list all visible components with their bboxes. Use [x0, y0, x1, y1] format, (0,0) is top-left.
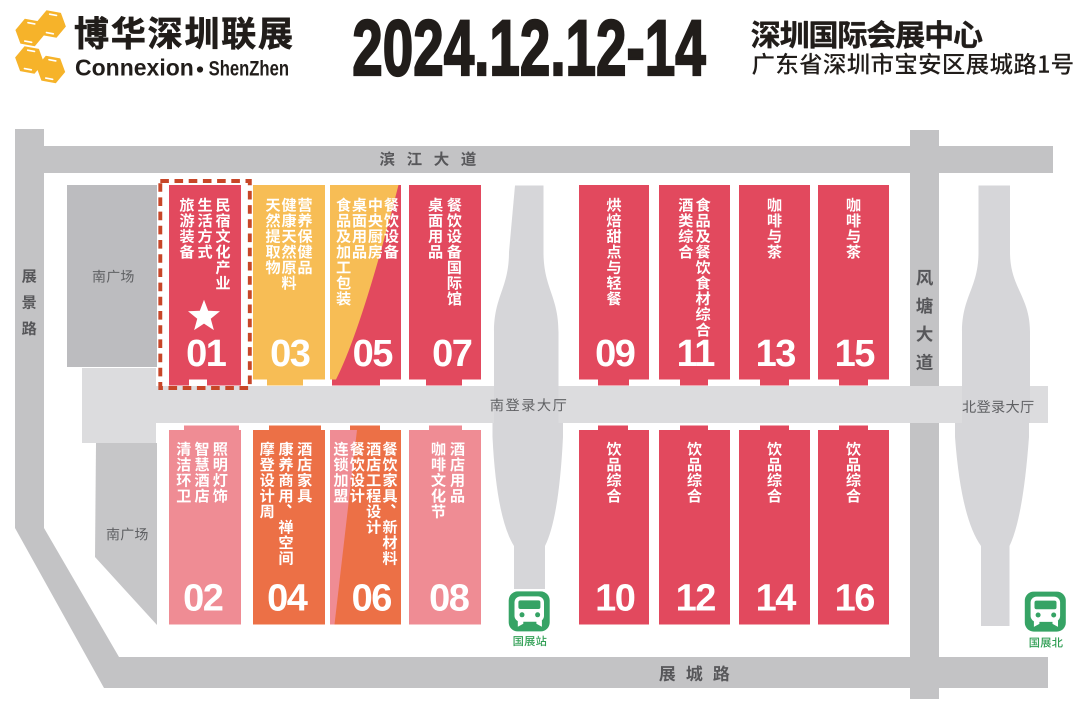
svg-text:16: 16 — [835, 578, 875, 620]
svg-text:08: 08 — [429, 578, 469, 620]
svg-text:03: 03 — [270, 333, 310, 375]
svg-text:09: 09 — [595, 333, 635, 375]
svg-text:06: 06 — [352, 578, 392, 620]
svg-text:13: 13 — [756, 333, 796, 375]
svg-text:05: 05 — [353, 333, 394, 375]
svg-text:14: 14 — [756, 578, 797, 620]
svg-text:10: 10 — [595, 578, 635, 620]
svg-text:2024.12.12-14: 2024.12.12-14 — [352, 4, 705, 92]
svg-text:Connexion: Connexion — [75, 55, 194, 81]
svg-text:02: 02 — [183, 578, 223, 620]
svg-text:04: 04 — [267, 578, 308, 620]
svg-text:ShenZhen: ShenZhen — [209, 57, 289, 80]
svg-text:15: 15 — [835, 333, 876, 375]
svg-text:11: 11 — [677, 333, 716, 375]
svg-text:01: 01 — [186, 333, 227, 375]
svg-text:07: 07 — [432, 333, 472, 375]
svg-text:12: 12 — [676, 578, 716, 620]
